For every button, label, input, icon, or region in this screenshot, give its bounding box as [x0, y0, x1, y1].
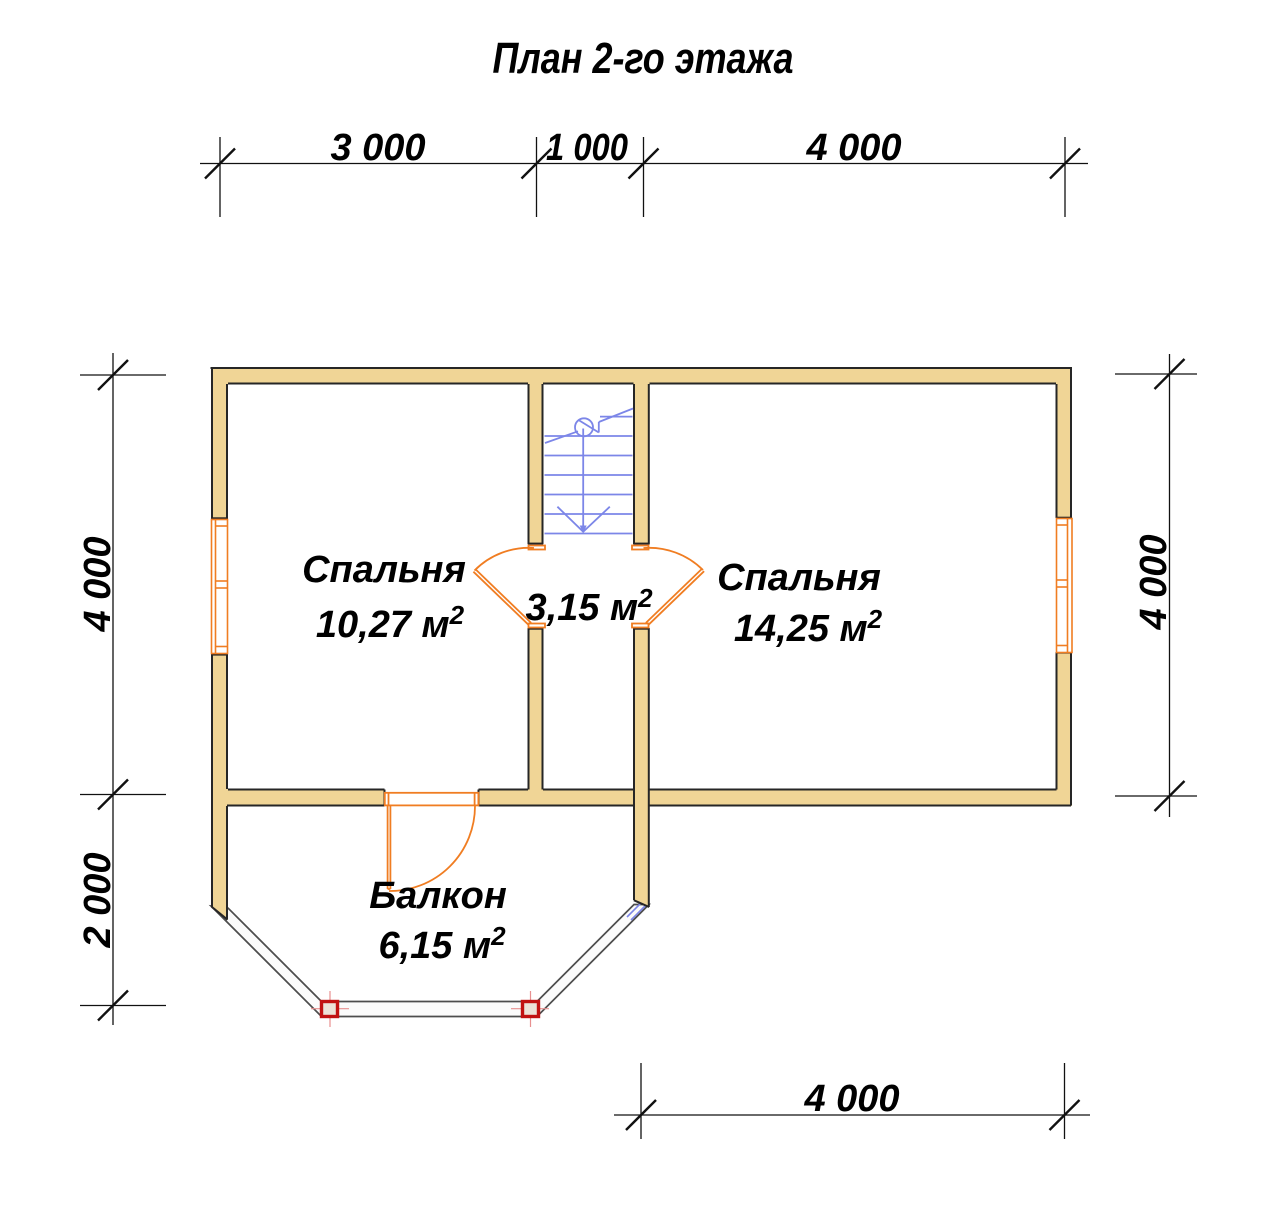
svg-text:4 000: 4 000: [1133, 534, 1175, 630]
svg-text:6,15 м2: 6,15 м2: [378, 921, 506, 967]
svg-text:1 000: 1 000: [546, 127, 628, 169]
svg-text:14,25 м2: 14,25 м2: [734, 604, 883, 650]
svg-text:Спальня: Спальня: [717, 557, 881, 599]
svg-text:Балкон: Балкон: [369, 875, 507, 917]
svg-text:2 000: 2 000: [77, 852, 119, 948]
svg-text:3 000: 3 000: [330, 127, 425, 169]
svg-text:4 000: 4 000: [803, 1078, 899, 1120]
svg-text:3,15 м2: 3,15 м2: [525, 583, 653, 629]
svg-text:4 000: 4 000: [805, 127, 901, 169]
svg-text:Спальня: Спальня: [302, 549, 466, 591]
svg-text:4 000: 4 000: [77, 536, 119, 632]
svg-text:План 2-го этажа: План 2-го этажа: [493, 35, 794, 83]
svg-text:10,27 м2: 10,27 м2: [316, 600, 465, 646]
